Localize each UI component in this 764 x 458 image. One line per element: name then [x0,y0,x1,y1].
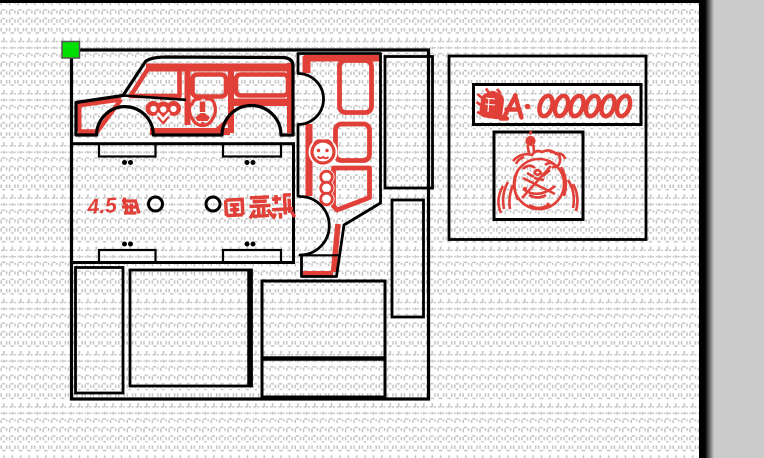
svg-text:4.5: 4.5 [86,194,118,219]
